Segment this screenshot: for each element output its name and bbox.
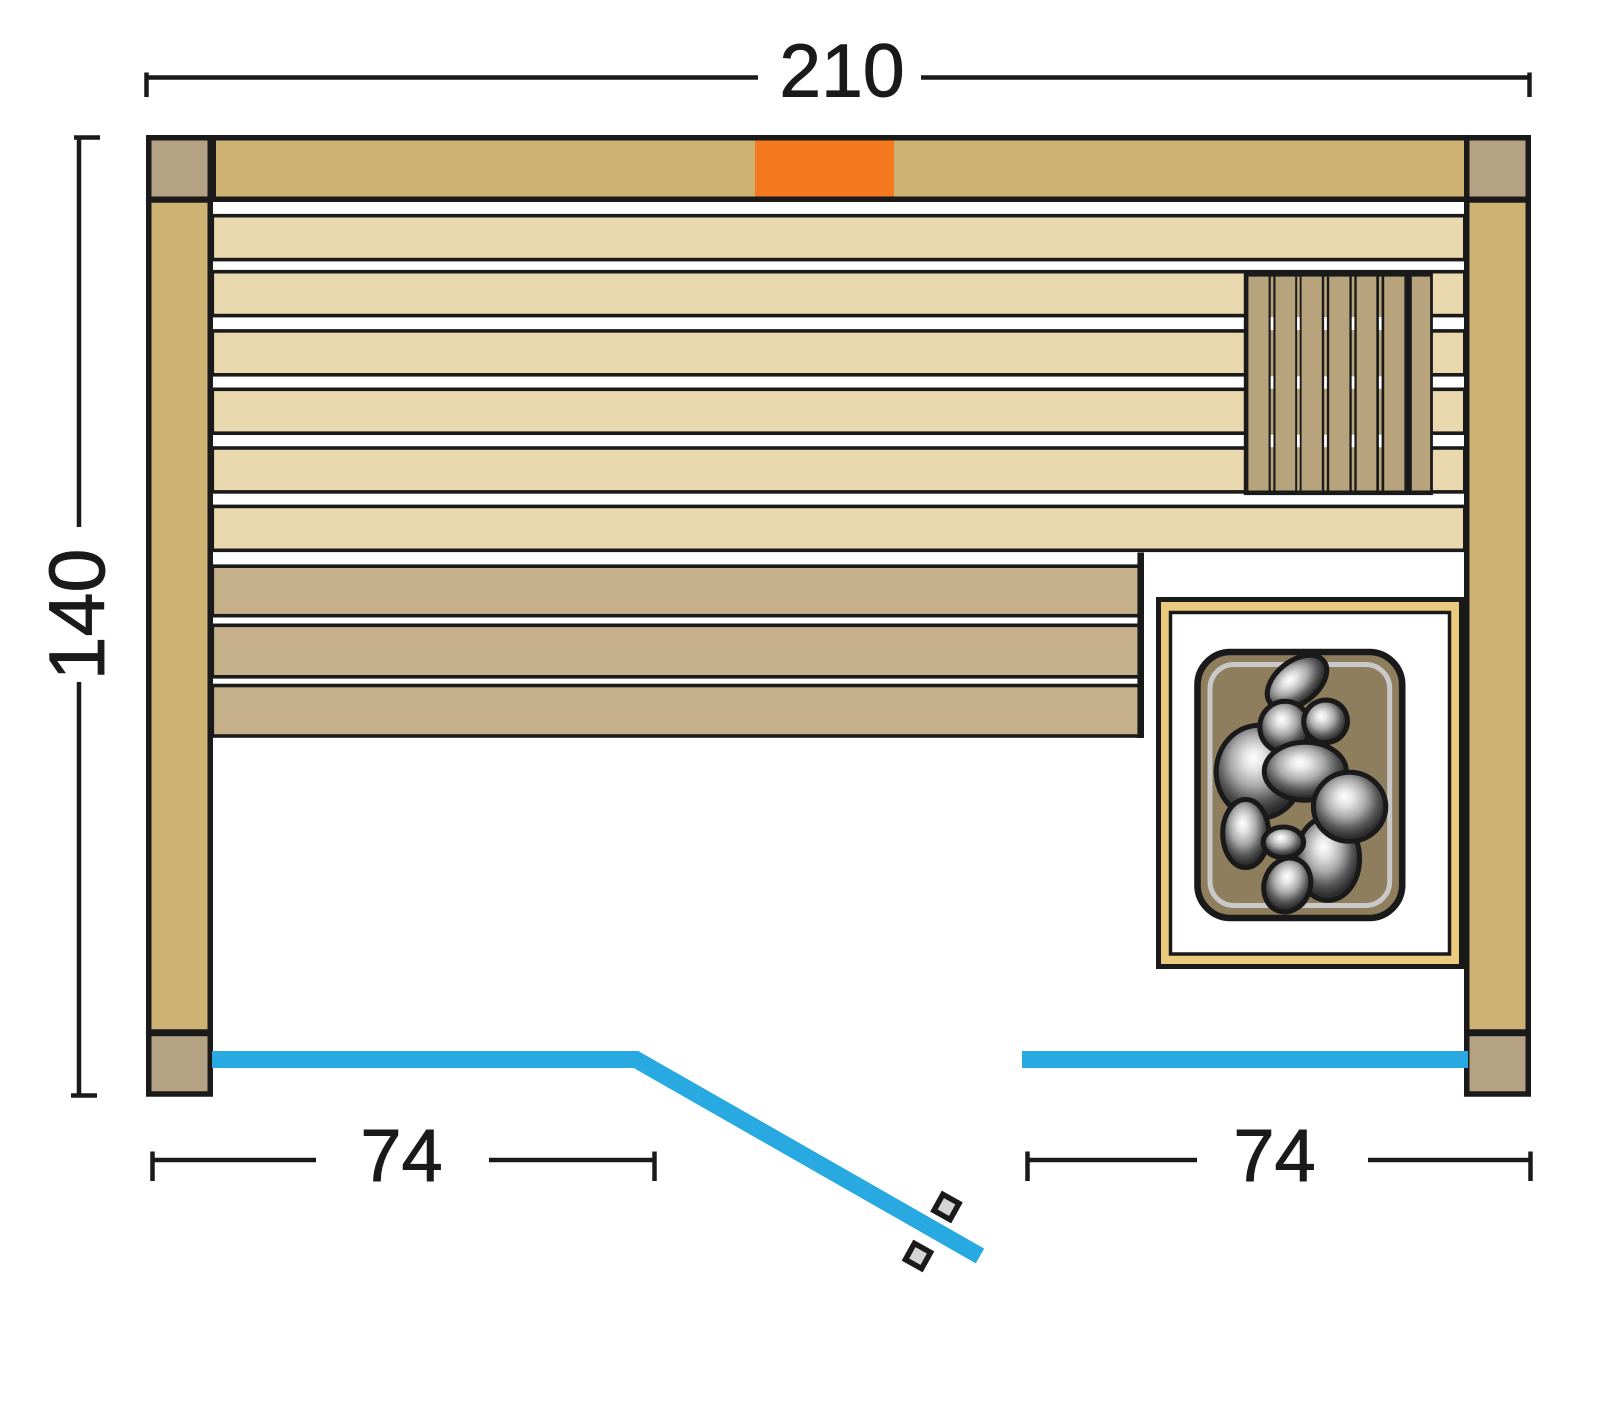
svg-text:210: 210 — [779, 29, 904, 113]
svg-text:74: 74 — [1233, 1114, 1315, 1197]
svg-text:140: 140 — [32, 549, 121, 681]
svg-text:74: 74 — [360, 1114, 442, 1197]
